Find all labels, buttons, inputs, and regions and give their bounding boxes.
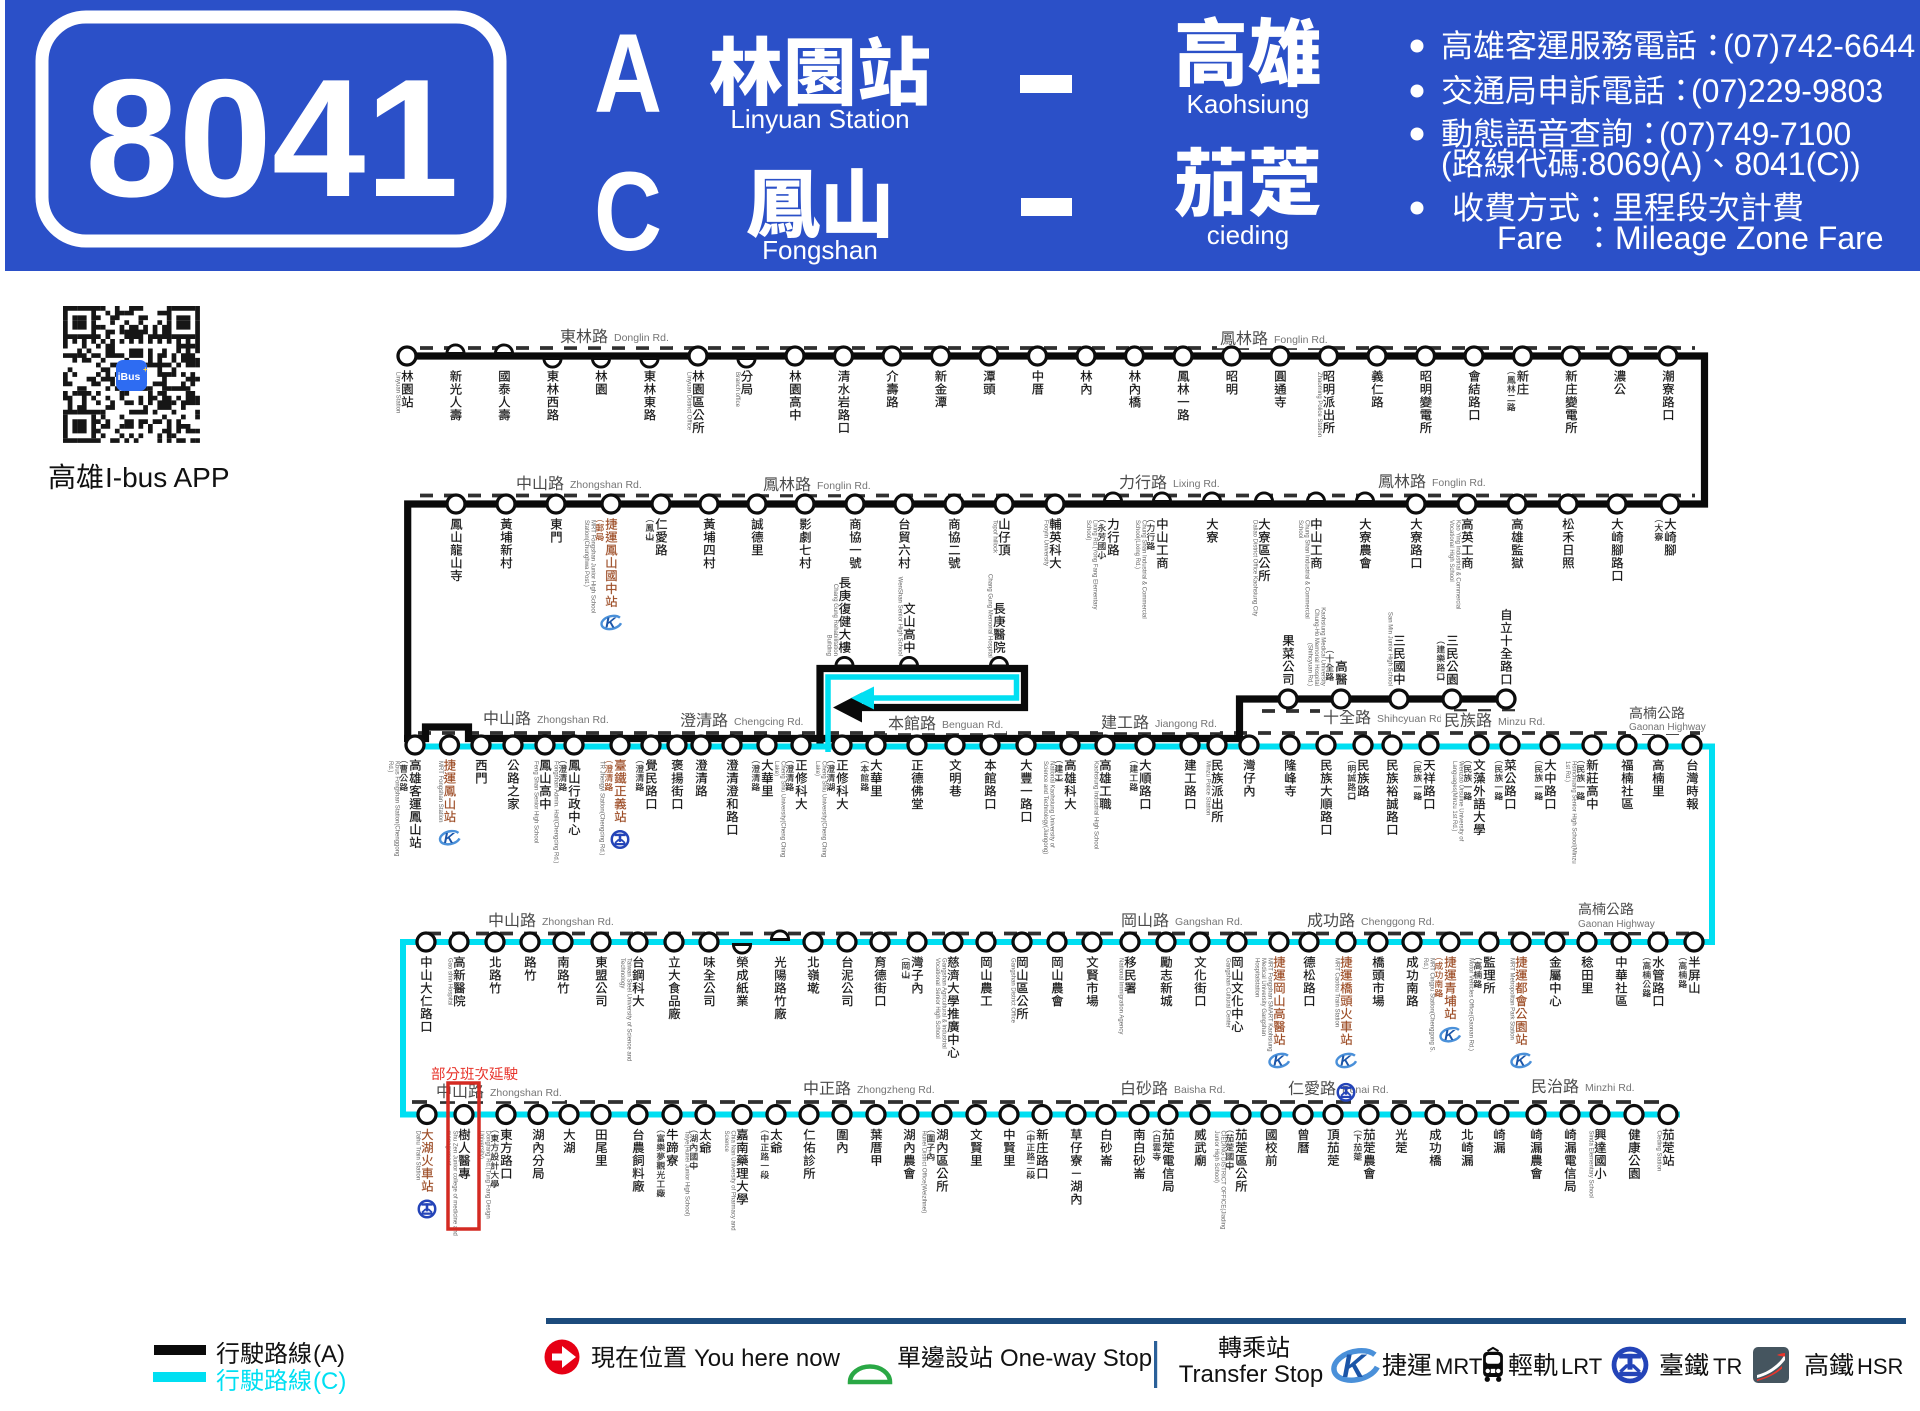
svg-text:Fongshan Admin. Hall(Chengcing: Fongshan Admin. Hall(Chengcing Rd.) [553,761,559,863]
svg-text:Lixing Rd.(Yong Fang Elementar: Lixing Rd.(Yong Fang Elementary [1092,520,1098,610]
svg-text:Taiwan Steel University of Sci: Taiwan Steel University of Science and [626,958,632,1061]
svg-text::8069(A): :8069(A) [1580,146,1703,182]
svg-text:Zhongzheng Rd.: Zhongzheng Rd. [857,1084,935,1096]
svg-text:Station(Chunghwa Post.): Station(Chunghwa Post.) [583,520,589,587]
svg-text:TR Jhengyi Station(Chengcing R: TR Jhengyi Station(Chengcing Rd.) [599,761,605,855]
svg-text:Baisha Rd.: Baisha Rd. [1174,1084,1225,1096]
svg-text:MRT: MRT [1435,1354,1482,1379]
svg-text:Kaohsiung Industrial High Scho: Kaohsiung Industrial High School [1093,761,1099,849]
svg-text:(07)229-9803: (07)229-9803 [1691,73,1883,109]
svg-text:Lake): Lake) [814,761,820,776]
svg-text:Daliao District Office Kaohsiu: Daliao District Office Kaohsiung City [1252,520,1258,616]
svg-text:Jiangong Rd.: Jiangong Rd. [1155,718,1217,730]
svg-text:School(Lixing Rd.): School(Lixing Rd.) [1134,520,1140,569]
svg-text:Science and Technology(Jiangon: Science and Technology(Jiangong) [1042,761,1048,854]
svg-text:Zhongshan Rd.: Zhongshan Rd. [490,1087,562,1099]
svg-text:Zhongshan Rd.: Zhongshan Rd. [570,479,642,491]
svg-text:Building: Building [826,635,832,656]
svg-text:Dahu Train Station: Dahu Train Station [415,1131,421,1181]
svg-text:Chung-Ho Memorial Hospital: Chung-Ho Memorial Hospital [1313,609,1319,686]
svg-text:Branch office: Branch office [734,372,740,408]
svg-text:CIEDING DISTRICT OFFICE(Jiadin: CIEDING DISTRICT OFFICE(Jiading [1220,1131,1226,1230]
svg-text:Sinda Elementary School: Sinda Elementary School [1588,1131,1594,1198]
svg-text:C: C [594,149,662,274]
svg-text:iBus: iBus [118,371,141,383]
svg-text:cieding: cieding [1207,220,1289,250]
svg-text:Cheng Shiu University(Cheng Ch: Cheng Shiu University(Cheng Ching [821,761,827,857]
svg-text:Benguan Rd.: Benguan Rd. [942,719,1003,731]
svg-text:Gaonan Highway: Gaonan Highway [1629,722,1706,733]
svg-text:8041(C)): 8041(C)) [1734,146,1860,182]
svg-text:Fonglin Rd.: Fonglin Rd. [817,480,871,492]
svg-text:Kaohsiung: Kaohsiung [1187,89,1310,119]
svg-text:Gangshan Rd.: Gangshan Rd. [1175,916,1243,928]
svg-text:Chengcing Rd.: Chengcing Rd. [734,716,803,728]
svg-text:Fooyin University: Fooyin University [1043,520,1049,566]
svg-text:A: A [594,11,662,136]
svg-text:Taiye(Hunei Junior High School: Taiye(Hunei Junior High School) [684,1131,690,1217]
svg-text:+: + [143,365,148,374]
svg-text:San Min Junior High School: San Min Junior High School [1386,612,1392,686]
svg-text:Medical University Gangshan: Medical University Gangshan [1260,958,1266,1036]
svg-text:Feng Shan Senior High School: Feng Shan Senior High School [533,761,539,843]
svg-text:Chang Gung Memorial Hospital: Chang Gung Memorial Hospital [987,574,993,658]
svg-text:Mileage Zone Fare: Mileage Zone Fare [1615,220,1884,256]
svg-text:MRT Caotou Train Station: MRT Caotou Train Station [1334,958,1340,1027]
svg-text:Zhaoming Police Station: Zhaoming Police Station [1316,372,1322,437]
svg-text:(Shihcyuan Rd.): (Shihcyuan Rd.) [1307,643,1313,686]
svg-text:Fonglin Rd.: Fonglin Rd. [1274,334,1328,346]
svg-text:Cheng Shiu University(Cheng Ch: Cheng Shiu University(Cheng Ching [780,761,786,857]
svg-text:Vocational Senior High School: Vocational Senior High School [934,958,940,1039]
svg-text:Linyuan District Office: Linyuan District Office [686,372,692,431]
svg-text:Transfer Stop: Transfer Stop [1179,1361,1324,1388]
svg-text:Chung Shan Industrial & Commer: Chung Shan Industrial & Commercial [1141,520,1147,619]
svg-text:(: ( [1441,146,1452,182]
svg-text:Linyuan Station: Linyuan Station [730,104,909,134]
svg-text:Minzu Police Station: Minzu Police Station [1205,761,1211,815]
svg-text:Hunei District Office(Weizihne: Hunei District Office(Weizihnei) [921,1131,927,1214]
svg-text:Cieding Station: Cieding Station [1656,1131,1662,1172]
svg-text:Minzu Rd.: Minzu Rd. [1498,716,1545,728]
svg-text:(07)742-6644: (07)742-6644 [1723,28,1915,64]
svg-text:Science: Science [723,1131,729,1153]
svg-text:Zhongshan Rd.: Zhongshan Rd. [542,916,614,928]
svg-text:Kbus Fongshan Station(Chenggon: Kbus Fongshan Station(Chenggong [394,761,400,856]
svg-text:National Kaohsiung University: National Kaohsiung University of [1049,761,1055,848]
svg-text:Rd.): Rd.) [1422,958,1428,969]
svg-text:School: School [1297,520,1303,538]
svg-text:Gao shin Hospital: Gao shin Hospital [447,958,453,1005]
svg-text:1st Rd.): 1st Rd.) [1564,761,1570,782]
svg-text:Technology: Technology [619,958,625,988]
svg-text:One-way Stop: One-way Stop [1000,1345,1152,1372]
svg-text:WenShan Senior High School: WenShan Senior High School [896,577,902,656]
svg-text:MRT Cingpu Station(Chenggong S: MRT Cingpu Station(Chenggong S. [1429,958,1435,1053]
svg-text:Rd.): Rd.) [387,761,393,772]
svg-text:Zhongshan Rd.: Zhongshan Rd. [537,714,609,726]
svg-text:MRT Metropolitan Park Station: MRT Metropolitan Park Station [1509,958,1515,1040]
svg-text:8041: 8041 [85,44,459,232]
svg-text:School): School) [1085,520,1091,540]
svg-text:Chang Gung Rehabilitation: Chang Gung Rehabilitation [832,584,838,656]
svg-text:Dongfang Rd.(Tung Fang Design: Dongfang Rd.(Tung Fang Design [485,1131,491,1219]
svg-text:TR: TR [1713,1354,1742,1379]
svg-text:Kao Ying Industrial & Commerci: Kao Ying Industrial & Commercial [1455,520,1461,609]
svg-text:National Immigration Agency: National Immigration Agency [1118,958,1124,1034]
svg-text:Wenzao Ursuline University of: Wenzao Ursuline University of [1458,761,1464,842]
svg-text:Gangshan Cultural Center: Gangshan Cultural Center [1225,958,1231,1028]
svg-text:Topof hillock: Topof hillock [992,520,998,554]
svg-text:Gaonan Highway: Gaonan Highway [1578,919,1655,930]
svg-text:HSR: HSR [1857,1354,1903,1379]
svg-text:Motor Vehicles Office(Gaonan R: Motor Vehicles Office(Gaonan Rd.) [1468,958,1474,1051]
svg-text:Junior High School): Junior High School) [1213,1131,1219,1183]
svg-text:Hsinchuang Senior High School(: Hsinchuang Senior High School(Minzu [1571,761,1577,864]
svg-text:Shu Zen Junior college of medi: Shu Zen Junior college of medicine and [452,1131,458,1236]
svg-text:LRT: LRT [1561,1354,1602,1379]
svg-text:Chung Shan Industrial & Commer: Chung Shan Industrial & Commercial [1304,520,1310,619]
svg-text:Hospitalstation: Hospitalstation [1254,958,1260,997]
svg-text:Lixing Rd.: Lixing Rd. [1173,478,1220,490]
svg-text:Kaohsiung Medical University: Kaohsiung Medical University [1320,607,1326,686]
svg-text:MRT Fongshan SMART Kaohsiung: MRT Fongshan SMART Kaohsiung [1267,958,1273,1052]
svg-text:I-bus APP: I-bus APP [105,462,230,493]
svg-text:Gangshan District Office: Gangshan District Office [1010,958,1016,1024]
svg-text:You here now: You here now [694,1345,841,1372]
svg-text:Gangshan Agricultural & Indust: Gangshan Agricultural & Industrial [941,958,947,1049]
svg-text:Minzhi Rd.: Minzhi Rd. [1585,1082,1635,1094]
svg-text:Donglin Rd.: Donglin Rd. [614,332,669,344]
svg-text:MRT Fongshan Station: MRT Fongshan Station [437,761,443,822]
svg-text:Fonglin Rd.: Fonglin Rd. [1432,477,1486,489]
svg-text:Linyuan Station: Linyuan Station [395,372,401,413]
svg-text:(C): (C) [313,1368,346,1395]
svg-text:Chenggong Rd.: Chenggong Rd. [1361,916,1435,928]
svg-text:Fare: Fare [1497,220,1563,256]
svg-text:(A): (A) [313,1341,345,1368]
svg-text:Chia Nan University of Pharmac: Chia Nan University of Pharmacy and [730,1131,736,1231]
svg-text:Vocational High School: Vocational High School [1448,520,1454,582]
svg-text:Languages(Minzu 1st Rd.): Languages(Minzu 1st Rd.) [1451,761,1457,831]
svg-text:MRT Fongshan Junior High Schoo: MRT Fongshan Junior High School [590,520,596,613]
svg-text:Shihcyuan Rd.: Shihcyuan Rd. [1377,713,1445,725]
svg-text:Lake): Lake) [773,761,779,776]
svg-text:Fongshan: Fongshan [762,235,878,265]
